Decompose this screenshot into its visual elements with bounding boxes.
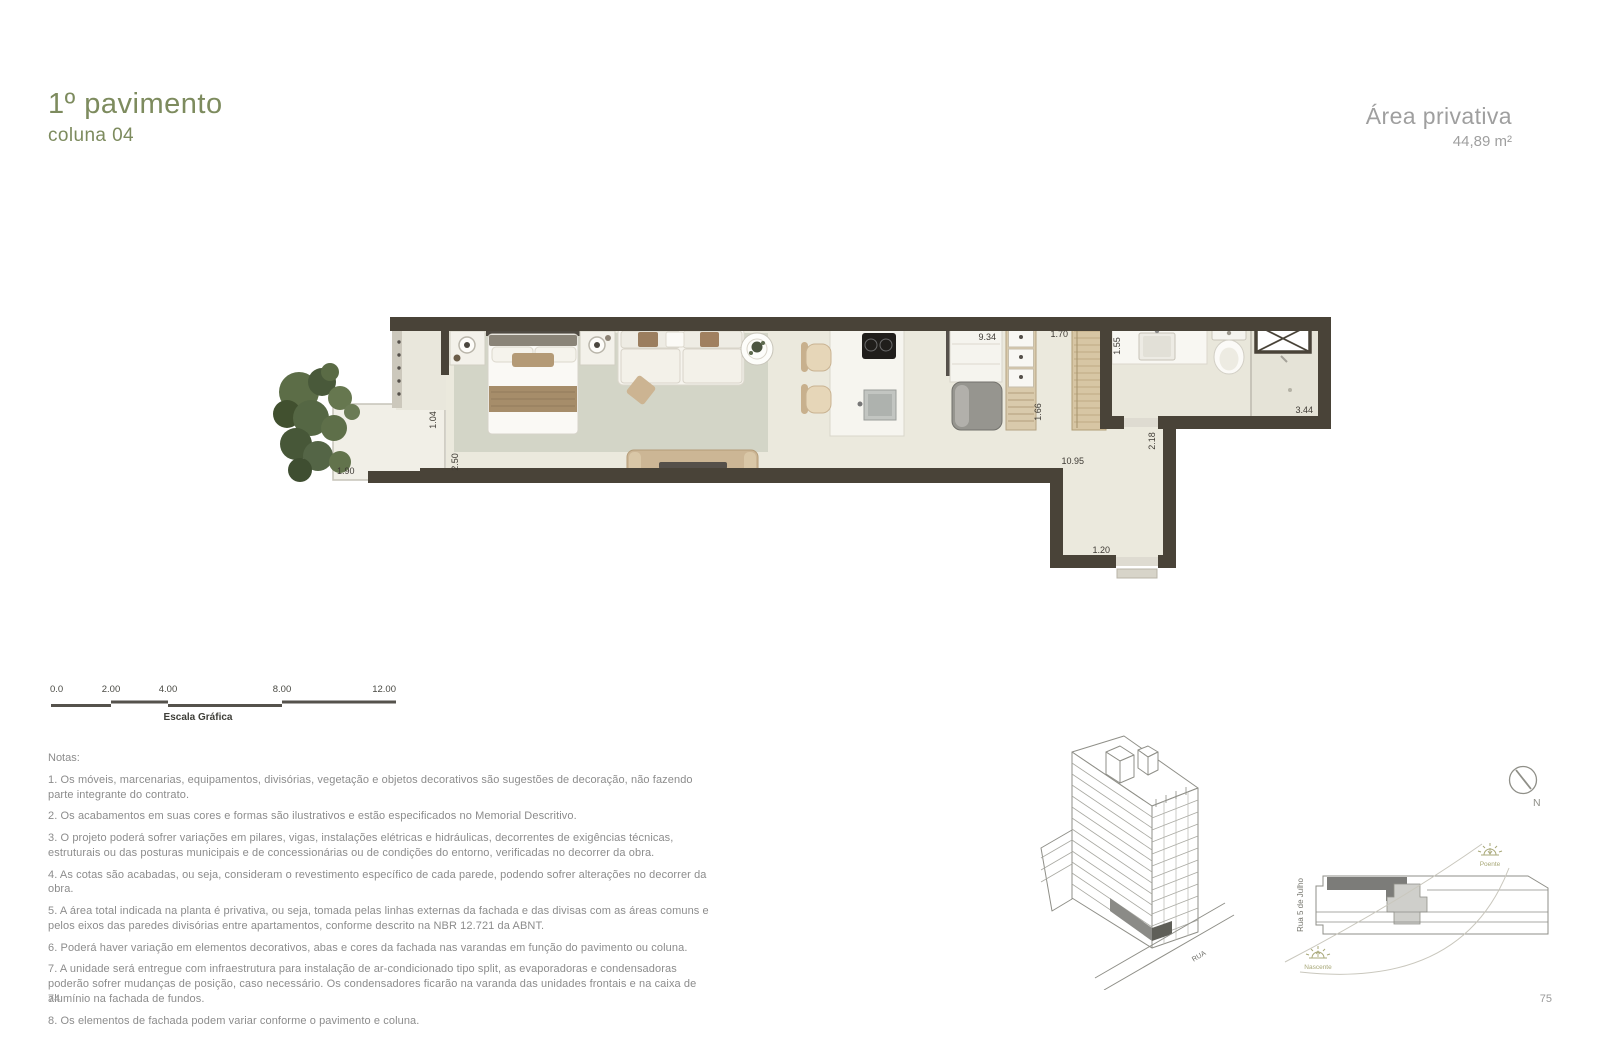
cooktop	[862, 333, 896, 359]
side-table	[741, 333, 773, 365]
brochure-page: 1º pavimento coluna 04 Área privativa 44…	[0, 0, 1600, 1043]
private-area-block: Área privativa 44,89 m²	[1366, 103, 1512, 150]
dim-label-closet: 1.66	[1033, 403, 1043, 421]
area-value: 44,89 m²	[1366, 133, 1512, 150]
notes-section: Notas: 1. Os móveis, marcenarias, equipa…	[48, 752, 716, 1035]
note-item: 4. As cotas são acabadas, ou seja, consi…	[48, 868, 716, 897]
dim-label-balcony: 1.90	[337, 466, 355, 476]
compass-needle	[1516, 770, 1531, 789]
note-item: 1. Os móveis, marcenarias, equipamentos,…	[48, 773, 716, 802]
note-item: 6. Poderá haver variação em elementos de…	[48, 941, 716, 956]
street-label: RUA	[1191, 950, 1208, 964]
dim-label-bedroom: 2.50	[450, 453, 460, 471]
sun-east-label: Nascente	[1304, 964, 1332, 971]
scale-tick-4: 12.00	[372, 684, 396, 695]
scale-bar-segments	[51, 701, 396, 708]
dim-label-kitchen: 9.34	[978, 332, 996, 342]
scale-bar: 0.0 2.00 4.00 8.00 12.00 Escala Gráfica	[48, 680, 398, 725]
nightstand-left	[450, 331, 485, 365]
note-item: 2. Os acabamentos em suas cores e formas…	[48, 809, 716, 824]
header: 1º pavimento coluna 04	[48, 88, 223, 147]
area-label: Área privativa	[1366, 103, 1512, 130]
building-annex	[1041, 830, 1072, 911]
compass: N	[1490, 752, 1560, 812]
dim-label-entry: 1.20	[1092, 545, 1110, 555]
scale-tick-0: 0.0	[50, 684, 63, 695]
scale-tick-2: 4.00	[159, 684, 178, 695]
page-subtitle: coluna 04	[48, 125, 223, 147]
note-item: 5. A área total indicada na planta é pri…	[48, 904, 716, 933]
page-number-left: 74	[48, 993, 60, 1005]
sun-west-label: Poente	[1480, 861, 1501, 868]
dim-label-balcony-depth: 1.04	[428, 411, 438, 429]
scale-tick-3: 8.00	[273, 684, 292, 695]
entry-door-threshold	[1116, 557, 1158, 566]
page-number-right: 75	[1540, 993, 1552, 1005]
entry-doormat	[1117, 569, 1157, 578]
bath-door-threshold	[1124, 418, 1158, 427]
note-item: 3. O projeto poderá sofrer variações em …	[48, 831, 716, 860]
note-item: 7. A unidade será entregue com infraestr…	[48, 962, 716, 1006]
floor-plan: 1.90 1.04 2.50 9.34 1.70 1.66 1.55 2.18 …	[270, 295, 1345, 585]
dim-label-ladder: 1.70	[1050, 329, 1068, 339]
page-title: 1º pavimento	[48, 88, 223, 121]
scale-tick-1: 2.00	[102, 684, 121, 695]
sun-east-icon	[1306, 946, 1330, 958]
bed	[486, 326, 580, 434]
nightstand-right	[580, 331, 615, 365]
shoe-closet	[1006, 324, 1036, 430]
closet-room-floor	[396, 330, 446, 410]
building-right-face	[1152, 788, 1198, 948]
kitchen-island	[830, 324, 904, 436]
site-plan: Rua 5 de Julho Poente Nascente	[1265, 828, 1570, 998]
compass-north-label: N	[1533, 797, 1541, 809]
notes-heading: Notas:	[48, 752, 716, 764]
dim-label-bath-length: 3.44	[1295, 405, 1313, 415]
building-isometric: RUA	[1000, 695, 1245, 990]
note-item: 8. Os elementos de fachada podem variar …	[48, 1014, 716, 1029]
scale-bar-caption: Escala Gráfica	[164, 712, 233, 723]
dim-label-bath-counter: 1.55	[1112, 337, 1122, 355]
dim-label-length: 10.95	[1061, 456, 1084, 466]
dim-label-hall: 2.18	[1147, 432, 1157, 450]
street-name-label: Rua 5 de Julho	[1296, 878, 1305, 932]
